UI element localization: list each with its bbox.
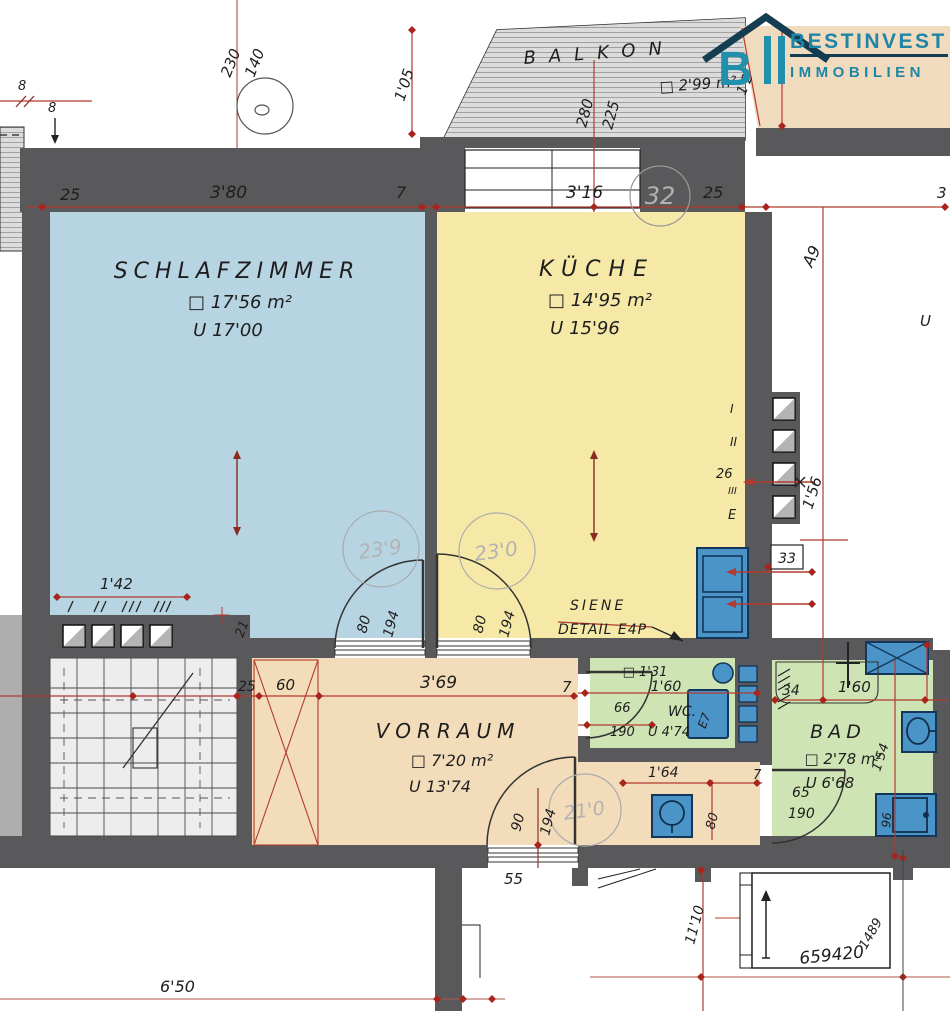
wc-name: WC.: [668, 704, 696, 720]
flue-label-26: 26: [716, 467, 733, 482]
wc-area: □ 1'31: [623, 665, 668, 680]
bad-dim-160: 1'60: [838, 678, 871, 696]
vorraum-dim-60: 60: [276, 676, 295, 694]
bad-washbasin: [902, 712, 936, 752]
label-u: U: [920, 312, 931, 330]
logo-bar-2: [778, 36, 785, 84]
hall-sink: [652, 795, 692, 837]
schlaf-dim-380: 3'80: [210, 183, 247, 203]
logo-letter-b: B: [718, 43, 753, 96]
bad-dim-96: 96: [879, 811, 894, 828]
floorplan-page: 33 E7: [0, 0, 950, 1011]
brand-title: BESTINVEST: [790, 30, 947, 53]
wc-perimeter: U 4'74: [648, 725, 690, 740]
schlaf-dim-7: 7: [396, 183, 407, 202]
terrace-wall: [756, 128, 950, 156]
vorraum-perimeter: U 13'74: [409, 777, 471, 796]
flue-box: [150, 625, 172, 647]
flue-label-i: I: [730, 402, 734, 416]
kueche-area: □ 14'95 m²: [548, 290, 652, 311]
kueche-name: KÜCHE: [539, 256, 655, 282]
flue-label-ii: II: [730, 435, 738, 449]
vorraum-name: VORRAUM: [376, 719, 521, 743]
window-symbol: [237, 78, 293, 134]
logo-divider: [790, 54, 948, 57]
detail-note-2: DETAIL E4P: [558, 622, 647, 638]
wc-width: 1'60: [651, 679, 682, 695]
schlaf-dim-142: 1'42: [100, 575, 133, 593]
dim-55: 55: [504, 870, 523, 888]
dim-1110: 11'10: [682, 904, 708, 946]
box-33: 33: [771, 545, 803, 569]
dim-140: 140: [241, 46, 268, 79]
vorraum-dim-7: 7: [562, 678, 572, 696]
flue-box: [121, 625, 143, 647]
bad-dim-34: 34: [782, 683, 800, 699]
floorplan-drawing: 33 E7: [0, 0, 950, 1011]
kitchen-cabinet: [697, 548, 748, 638]
logo-bar-1: [764, 36, 771, 84]
flue-box: [773, 496, 795, 518]
kueche-perimeter: U 15'96: [550, 318, 620, 339]
label-a9: A9: [798, 243, 825, 271]
stairwell: [50, 658, 237, 836]
niche-dim-164: 1'64: [648, 765, 679, 781]
schlafzimmer-name: SCHLAFZIMMER: [114, 259, 361, 284]
dim-230: 230: [217, 46, 244, 79]
box-33-label: 33: [778, 551, 796, 567]
niche-dim-7: 7: [753, 768, 762, 783]
balkon-sill: [420, 137, 745, 148]
bad-name: BAD: [810, 721, 866, 743]
bad-door-190: 190: [788, 806, 815, 822]
balkon-window: [465, 150, 640, 208]
flue-box: [92, 625, 114, 647]
dim-650: 6'50: [160, 977, 195, 996]
dim-8b: 8: [48, 101, 56, 116]
pos-32-label: 32: [645, 182, 676, 210]
vorraum-area: □ 7'20 m²: [411, 751, 494, 770]
schlaf-dim-25: 25: [60, 185, 80, 204]
kueche-dim-316: 3'16: [566, 183, 603, 203]
balkon-dim-105: 1'05: [391, 67, 418, 104]
dim-8a: 8: [18, 79, 26, 94]
flue-label-iii: III: [728, 486, 737, 497]
schlafzimmer-perimeter: U 17'00: [193, 320, 263, 341]
bad-door-65: 65: [792, 785, 810, 801]
detail-note-1: SIENE: [570, 598, 626, 614]
bathtub: [866, 642, 928, 674]
bad-perimeter: U 6'68: [806, 774, 855, 792]
schlafzimmer-area: □ 17'56 m²: [188, 292, 292, 313]
flue-box: [773, 398, 795, 420]
wc-door-190: 190: [610, 725, 635, 740]
flue-box: [773, 430, 795, 452]
wc-sink: [713, 663, 733, 683]
vorraum-dim-369: 3'69: [420, 673, 457, 693]
wc-door-66: 66: [614, 701, 631, 716]
flue-box: [63, 625, 85, 647]
kueche-dim-25: 25: [703, 183, 723, 202]
vorraum-dim-25: 25: [238, 679, 256, 695]
brand-subtitle: IMMOBILIEN: [790, 64, 925, 81]
step-marks: [462, 869, 656, 978]
edge-dim-3: 3: [937, 184, 947, 202]
flue-label-e: E: [728, 508, 737, 523]
